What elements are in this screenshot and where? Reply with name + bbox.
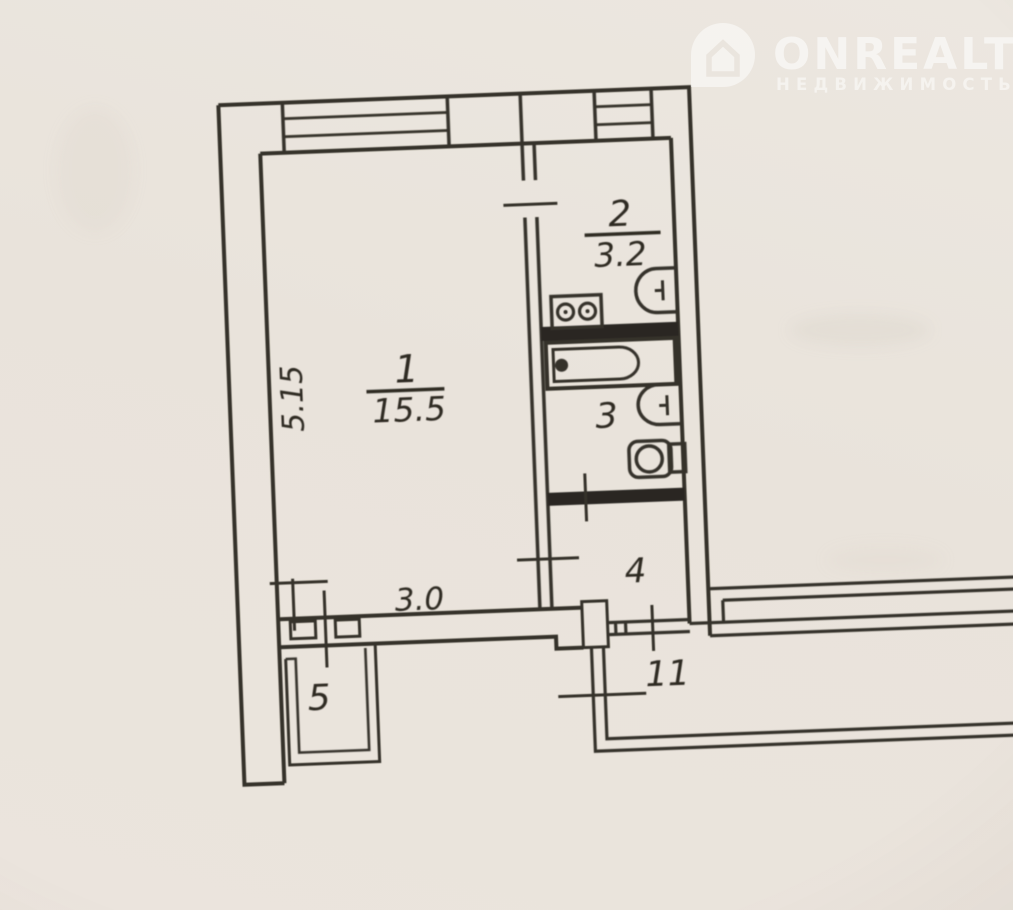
toilet-icon: [629, 440, 686, 478]
bathtub-drain: [555, 358, 568, 371]
paper-smudge: [827, 547, 943, 573]
wall-joint-lines: [282, 89, 653, 153]
bathtub-icon: [546, 338, 677, 389]
toilet-bowl: [636, 445, 663, 472]
balcony-inner-rail: [295, 648, 369, 753]
paper-smudge: [57, 108, 133, 232]
apartment-plan: 1 15.5 2 3.2 3 4 5 11 3.0 5.15: [218, 75, 1013, 785]
balcony-number: 5: [307, 677, 331, 719]
watermark-subtitle: НЕДВИЖИМОСТЬ: [776, 75, 1013, 94]
width-dimension-label: 3.0: [394, 581, 445, 619]
kitchen-area: 3.2: [593, 234, 647, 275]
living-room-window-icon: [283, 112, 449, 136]
sink-tap: [654, 280, 663, 300]
paper-artifacts: [57, 108, 943, 573]
kitchen-number: 2: [608, 193, 632, 235]
living-room-number: 1: [394, 347, 420, 392]
watermark-brand: ONREALT: [773, 29, 1013, 80]
living-room-area: 15.5: [372, 389, 447, 431]
corridor-dim-tick: [558, 693, 646, 696]
bathroom-number: 3: [595, 396, 619, 437]
bathroom-hall-wall: [547, 488, 684, 506]
stove-burner-dot: [563, 310, 567, 314]
kitchen-sink-icon: [635, 268, 678, 314]
paper-smudge: [790, 314, 930, 346]
bathroom-door-tick: [585, 473, 587, 521]
washbasin-icon: [637, 384, 682, 426]
corridor-number: 11: [645, 654, 691, 696]
balcony-outline: [285, 644, 379, 765]
floorplan-photo: 1 15.5 2 3.2 3 4 5 11 3.0 5.15: [0, 0, 1013, 910]
hall-door-tick: [517, 558, 579, 560]
stove-burner-dot: [585, 309, 589, 313]
stove-icon: [551, 295, 602, 329]
hall-number: 4: [624, 551, 647, 592]
pin-shape: [691, 23, 755, 87]
entrance-door-tick: [652, 605, 654, 651]
neighbor-wall: [688, 577, 1013, 637]
entrance-wall: [608, 620, 690, 635]
balcony-door-tick: [324, 591, 327, 668]
kitchen-window-icon: [595, 105, 653, 125]
floorplan-drawing: 1 15.5 2 3.2 3 4 5 11 3.0 5.15: [0, 0, 1013, 910]
exterior-wall: [218, 87, 715, 785]
kitchen-door-tick: [503, 203, 557, 205]
watermark: ONREALT НЕДВИЖИМОСТЬ: [691, 23, 1013, 94]
house-location-pin-icon: [691, 23, 755, 87]
washbasin-tap: [659, 395, 668, 415]
depth-dimension-label: 5.15: [274, 365, 312, 433]
